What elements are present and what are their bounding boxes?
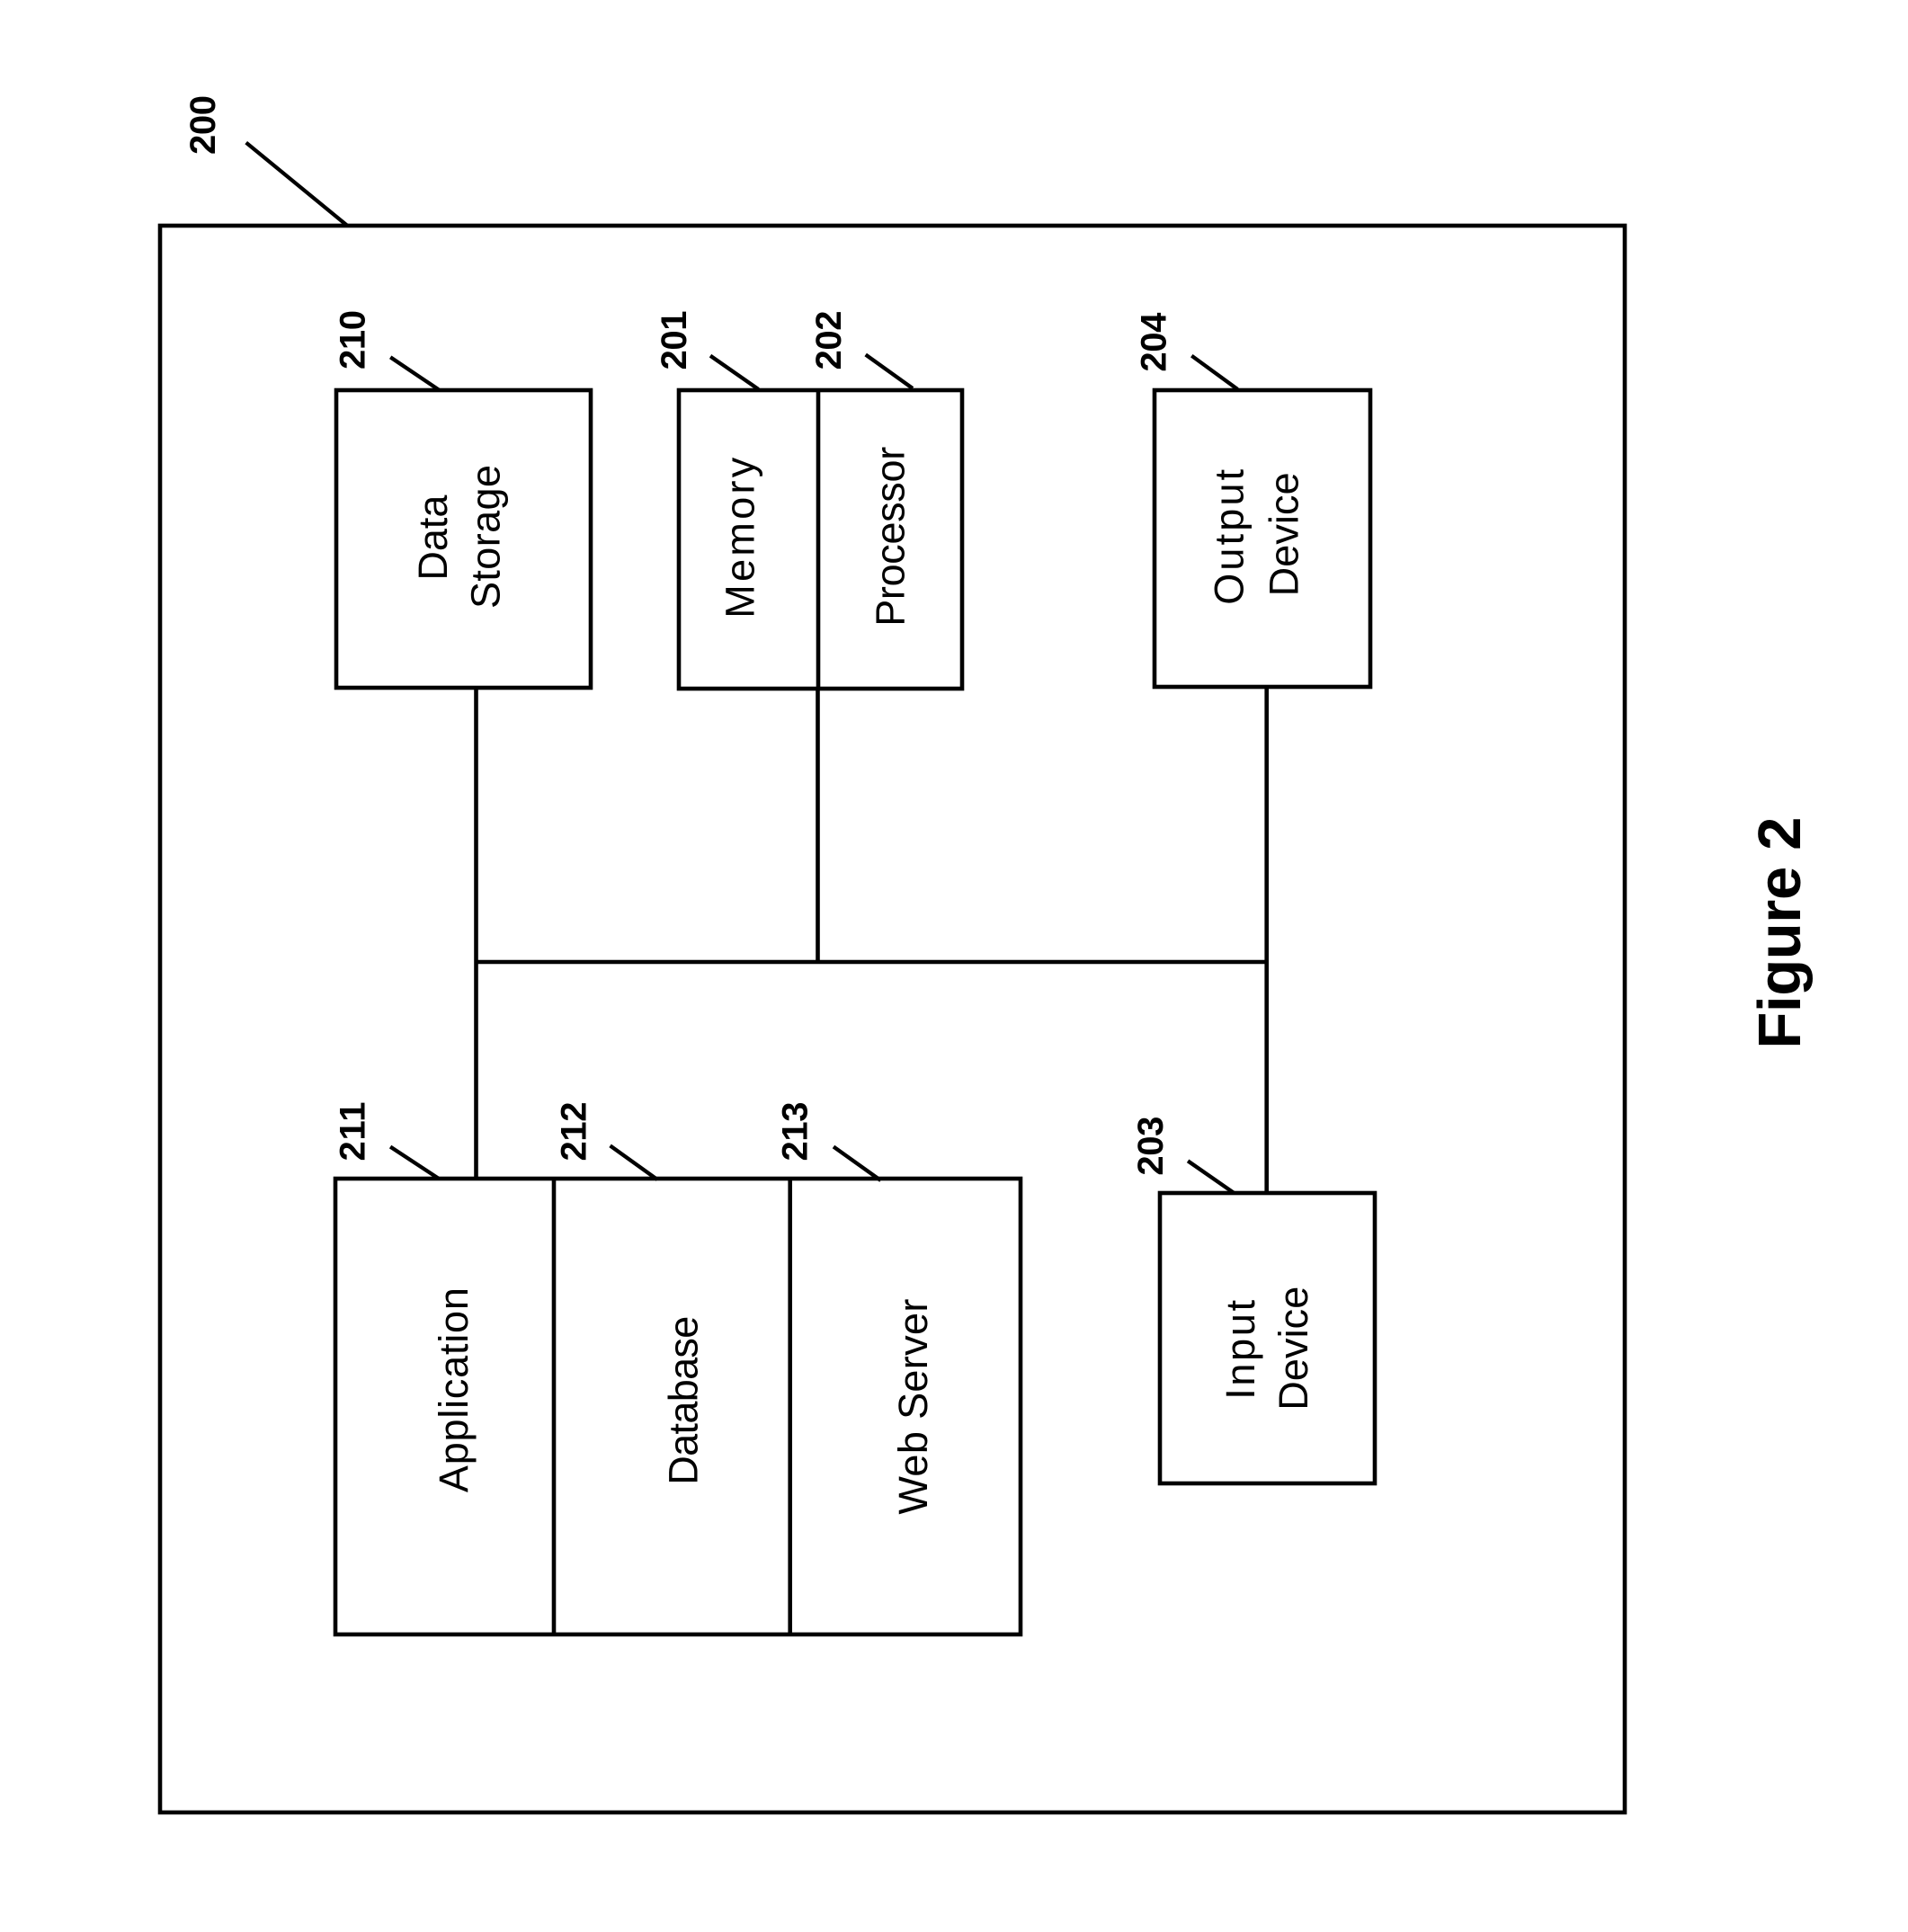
svg-text:210: 210	[333, 310, 372, 369]
svg-text:Data: Data	[410, 494, 456, 581]
svg-text:Memory: Memory	[717, 457, 762, 619]
svg-text:Output: Output	[1207, 468, 1253, 604]
svg-text:Device: Device	[1262, 472, 1307, 596]
svg-text:212: 212	[554, 1102, 593, 1162]
svg-text:Processor: Processor	[867, 447, 913, 627]
svg-text:Figure 2: Figure 2	[1746, 817, 1814, 1049]
svg-text:Input: Input	[1217, 1299, 1263, 1399]
svg-text:Web Server: Web Server	[890, 1299, 936, 1515]
svg-text:213: 213	[776, 1102, 816, 1162]
svg-text:200: 200	[183, 95, 223, 155]
svg-text:202: 202	[809, 311, 849, 370]
svg-text:Device: Device	[1271, 1287, 1316, 1411]
svg-text:203: 203	[1131, 1117, 1171, 1176]
svg-text:Storage: Storage	[463, 465, 509, 609]
svg-text:Database: Database	[660, 1316, 706, 1485]
svg-text:201: 201	[655, 311, 694, 370]
svg-text:204: 204	[1135, 312, 1174, 372]
svg-text:Application: Application	[431, 1287, 477, 1492]
svg-text:211: 211	[334, 1102, 373, 1162]
